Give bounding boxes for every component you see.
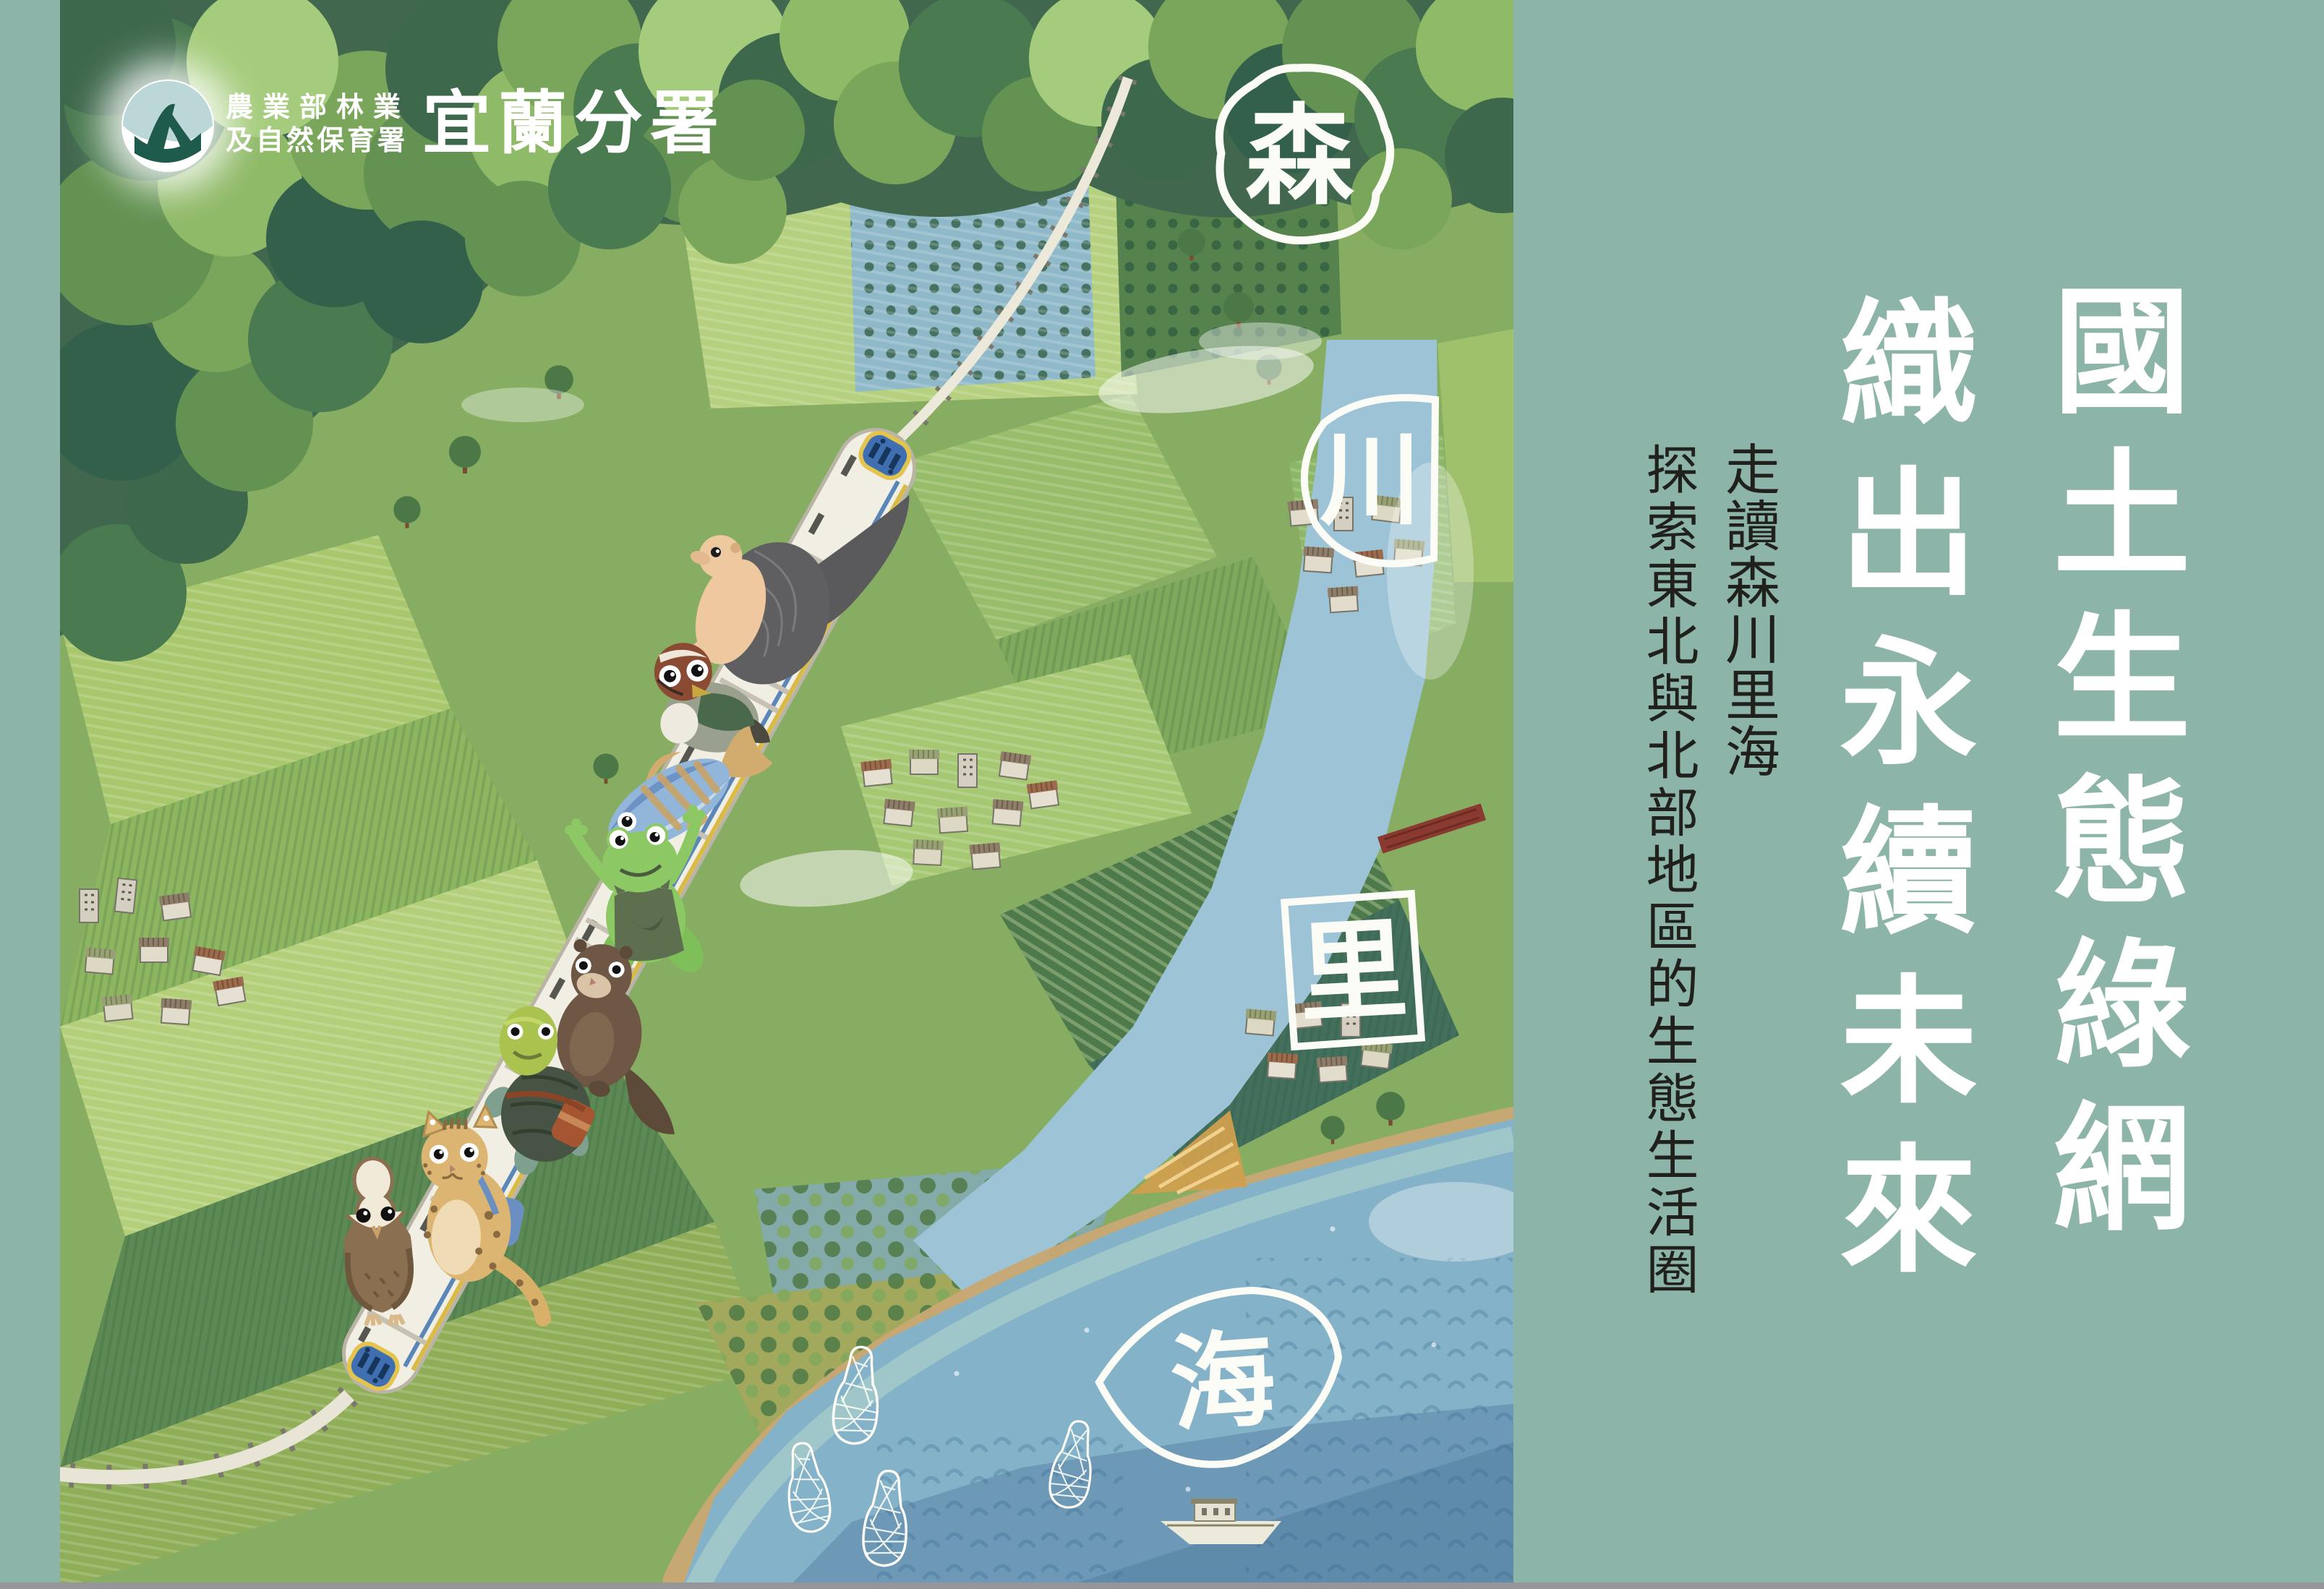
sea-label: 海 [1166,1320,1279,1444]
bottom-edge [0,1582,2324,1589]
river-label: 川 [1320,423,1421,536]
forestry-agency-logo [121,80,214,172]
org-name: 農業部林業 及自然保育署 [226,91,410,158]
subtitle-line1: 走讀森川里海 [1719,441,1774,779]
subtitle-line2: 探索東北與北部地區的生態生活圈 [1641,442,1694,1299]
org-name-line2: 及自然保育署 [226,124,410,158]
poster: 森 川 里 海 農業部林業 及自然保育署 宜蘭分署 國土生態綠網 織出永續未來 [0,0,2324,1589]
org-name-line1: 農業部林業 [226,91,410,124]
forest-label: 森 [1245,95,1354,217]
branch-name: 宜蘭分署 [422,68,726,167]
map-illustration: 森 川 里 海 [60,0,1513,1589]
village-label: 里 [1296,908,1411,1035]
main-title-line2: 織出永續未來 [1827,292,1965,1307]
main-title-line1: 國土生態綠網 [2041,279,2178,1259]
